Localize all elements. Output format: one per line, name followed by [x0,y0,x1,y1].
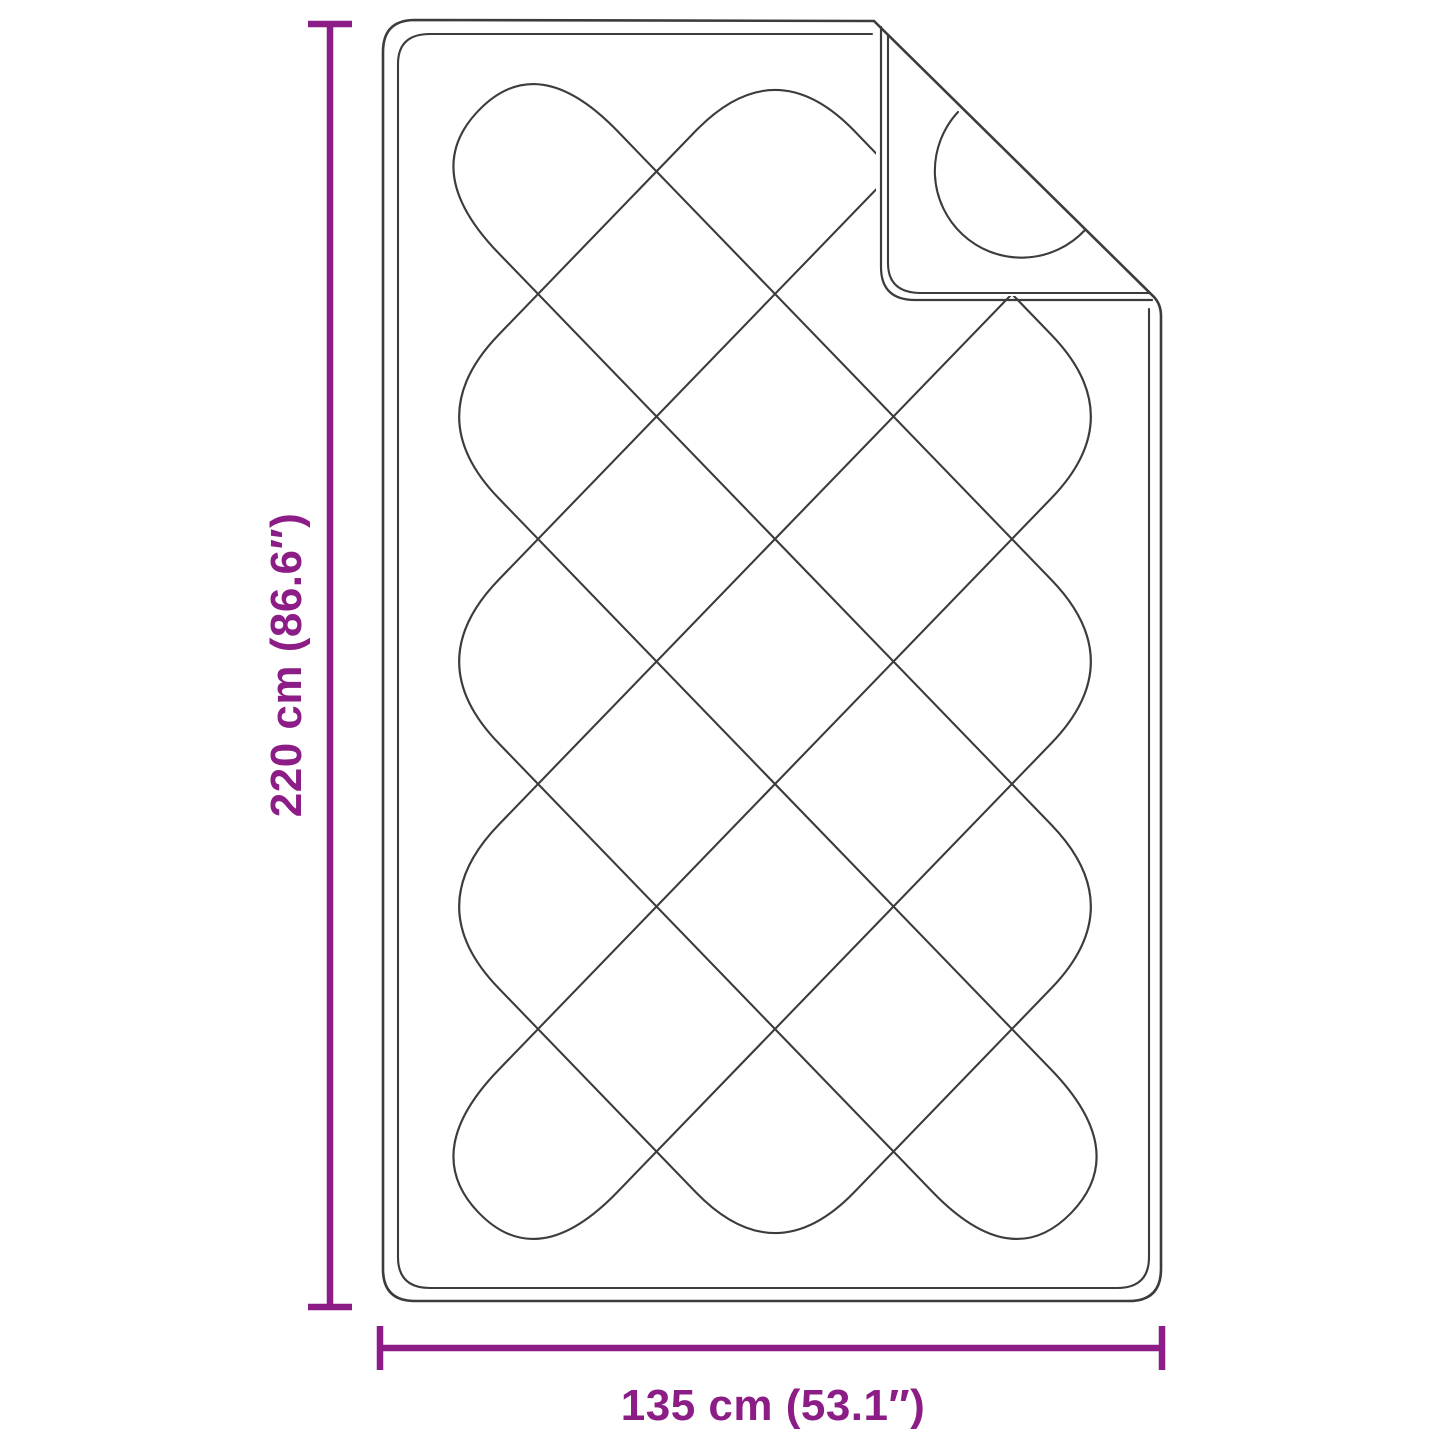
height-dimension-label: 220 cm (86.6″) [262,513,312,817]
product-dimension-diagram: 220 cm (86.6″) 135 cm (53.1″) [0,0,1445,1445]
blanket-drawing [383,20,1161,1301]
width-dimension-label: 135 cm (53.1″) [621,1381,925,1431]
quilting-pattern [453,84,1096,1239]
flap-backside-circle-arc [935,112,1085,258]
dimension-annotations [308,24,1162,1370]
blanket-binding-seam [398,34,1149,1288]
blanket-line-drawing [0,0,1445,1445]
blanket-outline [383,20,1161,1301]
